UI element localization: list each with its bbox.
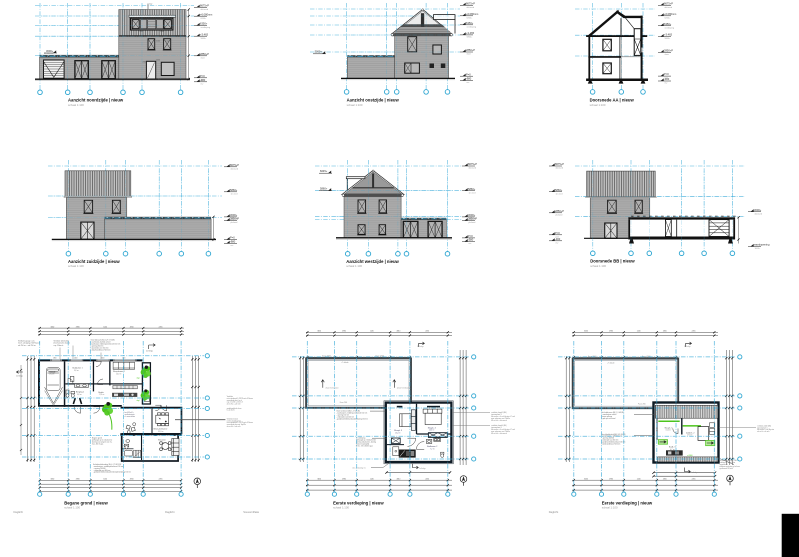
svg-text:3000+: 3000+ bbox=[230, 213, 238, 217]
svg-text:schaal 1:100: schaal 1:100 bbox=[68, 103, 84, 107]
svg-text:dakrand: dakrand bbox=[231, 167, 239, 170]
svg-text:2e f/erfgr.: 2e f/erfgr. bbox=[684, 346, 691, 348]
svg-text:2x00: 2x00 bbox=[156, 41, 160, 43]
svg-text:5860+: 5860+ bbox=[665, 38, 672, 40]
svg-text:3460: 3460 bbox=[50, 326, 54, 328]
svg-text:2980: 2980 bbox=[609, 331, 613, 333]
svg-text:schaal 1:100: schaal 1:100 bbox=[346, 264, 362, 268]
svg-text:b.k: b.k bbox=[158, 79, 160, 81]
svg-text:2265: 2265 bbox=[159, 479, 163, 481]
svg-text:Fase 266: Fase 266 bbox=[638, 404, 646, 406]
svg-text:4810: 4810 bbox=[130, 479, 134, 481]
svg-text:1240: 1240 bbox=[637, 479, 641, 481]
svg-text:5860+: 5860+ bbox=[468, 187, 476, 191]
svg-text:2e f/erfgr.: 2e f/erfgr. bbox=[417, 346, 424, 348]
svg-text:-300: -300 bbox=[468, 238, 474, 242]
svg-text:verdieping: verdieping bbox=[201, 26, 211, 29]
svg-text:plafond: plafond bbox=[469, 222, 477, 224]
svg-text:5860+: 5860+ bbox=[555, 188, 563, 192]
svg-text:35,2 m²: 35,2 m² bbox=[158, 430, 164, 433]
svg-text:schaal 1:100: schaal 1:100 bbox=[590, 103, 606, 107]
svg-text:dakrand: dakrand bbox=[556, 167, 564, 170]
svg-text:6260+: 6260+ bbox=[665, 17, 672, 19]
svg-text:19,3 m²: 19,3 m² bbox=[49, 373, 55, 376]
svg-text:2265: 2265 bbox=[425, 479, 429, 481]
svg-text:9,8 m²: 9,8 m² bbox=[74, 369, 79, 372]
svg-text:14,7 m²: 14,7 m² bbox=[116, 372, 122, 375]
svg-text:2265: 2265 bbox=[425, 331, 429, 333]
svg-text:1240: 1240 bbox=[103, 479, 107, 481]
svg-text:verdieping: verdieping bbox=[665, 26, 675, 29]
svg-text:P=0: P=0 bbox=[230, 236, 235, 240]
svg-text:2400: 2400 bbox=[74, 357, 78, 359]
svg-text:dagl.: dagl. bbox=[137, 400, 141, 402]
svg-text:dakrand: dakrand bbox=[467, 6, 475, 9]
svg-text:schaal 1:100: schaal 1:100 bbox=[347, 103, 363, 107]
svg-text:2850+P: 2850+P bbox=[468, 217, 477, 221]
svg-text:4810: 4810 bbox=[397, 479, 401, 481]
svg-text:2265: 2265 bbox=[692, 331, 696, 333]
svg-text:plafond: plafond bbox=[231, 222, 239, 224]
svg-text:6350+: 6350+ bbox=[200, 22, 208, 26]
svg-text:1240: 1240 bbox=[370, 479, 374, 481]
svg-text:3460: 3460 bbox=[317, 331, 321, 333]
svg-text:13,2 m²: 13,2 m² bbox=[395, 431, 401, 434]
svg-text:schaal 1:100: schaal 1:100 bbox=[333, 506, 349, 510]
svg-text:+3.465: +3.465 bbox=[200, 32, 209, 36]
svg-text:8675+P: 8675+P bbox=[466, 1, 475, 5]
svg-text:1240: 1240 bbox=[103, 326, 107, 328]
svg-text:3000+: 3000+ bbox=[468, 213, 476, 217]
svg-text:schaal 1:100: schaal 1:100 bbox=[68, 264, 84, 268]
svg-text:P=0: P=0 bbox=[555, 231, 560, 235]
svg-text:2265: 2265 bbox=[159, 326, 163, 328]
svg-text:2980: 2980 bbox=[342, 331, 346, 333]
svg-text:6260+: 6260+ bbox=[201, 18, 208, 20]
svg-text:2265: 2265 bbox=[692, 479, 696, 481]
svg-text:dakrand: dakrand bbox=[469, 167, 477, 170]
svg-text:+7 dakde: +7 dakde bbox=[341, 362, 348, 364]
svg-text:2e f/erfgr.: 2e f/erfgr. bbox=[146, 350, 154, 353]
svg-text:2980: 2980 bbox=[342, 479, 346, 481]
svg-text:-300: -300 bbox=[466, 77, 472, 81]
svg-text:P=0: P=0 bbox=[664, 72, 669, 76]
svg-text:kast 8/8 m2 k.ventilatieruimte: kast 8/8 m2 k.ventilatieruimtecf. voorsc… bbox=[125, 411, 136, 418]
svg-text:1e f/erfgr.: 1e f/erfgr. bbox=[16, 375, 24, 378]
svg-text:13,4 m²: 13,4 m² bbox=[429, 429, 435, 432]
svg-text:2850+P: 2850+P bbox=[200, 52, 209, 56]
svg-text:8675+P: 8675+P bbox=[230, 163, 239, 167]
svg-text:dagl.: dagl. bbox=[137, 377, 141, 379]
svg-text:2300: 2300 bbox=[143, 62, 147, 64]
svg-text:1240: 1240 bbox=[637, 331, 641, 333]
svg-text:2850+P: 2850+P bbox=[230, 217, 239, 221]
svg-text:3460: 3460 bbox=[317, 479, 321, 481]
svg-text:2850+P: 2850+P bbox=[664, 49, 673, 53]
svg-text:2980: 2980 bbox=[76, 326, 80, 328]
svg-text:st 2666: st 2666 bbox=[687, 454, 693, 457]
svg-text:6260+: 6260+ bbox=[467, 17, 474, 19]
svg-text:5860+: 5860+ bbox=[230, 188, 238, 192]
svg-text:3000+: 3000+ bbox=[315, 50, 323, 54]
svg-text:schaal 1:100: schaal 1:100 bbox=[590, 264, 606, 268]
svg-text:3460: 3460 bbox=[584, 331, 588, 333]
svg-text:4810: 4810 bbox=[663, 479, 667, 481]
svg-text:3000+: 3000+ bbox=[46, 49, 54, 53]
svg-text:5860+: 5860+ bbox=[467, 37, 474, 39]
svg-text:2850+P: 2850+P bbox=[555, 209, 564, 213]
svg-text:vloer: vloer bbox=[467, 53, 472, 56]
svg-text:schaal 1:100: schaal 1:100 bbox=[64, 506, 80, 510]
svg-text:-300: -300 bbox=[200, 78, 206, 82]
svg-text:Souverniflatie: Souverniflatie bbox=[243, 510, 259, 514]
svg-text:6350+: 6350+ bbox=[466, 21, 474, 25]
svg-text:+3.465: +3.465 bbox=[664, 33, 673, 37]
svg-text:7,3 m²: 7,3 m² bbox=[160, 441, 165, 444]
svg-text:+6.080mm: +6.080mm bbox=[466, 12, 478, 16]
svg-text:4810: 4810 bbox=[130, 326, 134, 328]
svg-text:8675+P: 8675+P bbox=[468, 162, 477, 166]
svg-text:Daglicht: Daglicht bbox=[549, 510, 559, 514]
svg-text:6350+: 6350+ bbox=[664, 22, 672, 26]
svg-text:wandopening: wandopening bbox=[754, 243, 770, 247]
svg-text:kw: kw bbox=[150, 4, 153, 6]
svg-text:Fase 266: Fase 266 bbox=[340, 402, 348, 404]
svg-text:1240: 1240 bbox=[370, 331, 374, 333]
svg-text:dakrand: dakrand bbox=[201, 8, 209, 11]
svg-text:500k: 500k bbox=[160, 31, 164, 33]
svg-text:2980: 2980 bbox=[76, 479, 80, 481]
svg-text:dakrand: dakrand bbox=[755, 212, 763, 215]
svg-text:bk dakrand: bk dakrand bbox=[44, 52, 53, 55]
svg-text:P=0: P=0 bbox=[468, 234, 473, 238]
svg-text:verdieping: verdieping bbox=[467, 25, 477, 28]
svg-text:vloer: vloer bbox=[201, 56, 206, 59]
svg-text:8675+P: 8675+P bbox=[200, 3, 209, 7]
svg-text:plafond: plafond bbox=[556, 214, 564, 216]
svg-text:2x00: 2x00 bbox=[165, 41, 169, 43]
svg-text:dakrand: dakrand bbox=[665, 6, 673, 9]
svg-text:+3.465: +3.465 bbox=[466, 31, 475, 35]
svg-text:3460: 3460 bbox=[50, 479, 54, 481]
svg-text:vloer: vloer bbox=[665, 53, 670, 56]
svg-text:-300: -300 bbox=[664, 77, 670, 81]
svg-text:1800: 1800 bbox=[53, 357, 57, 359]
svg-text:4810: 4810 bbox=[397, 331, 401, 333]
svg-text:1e verd: 1e verd bbox=[556, 192, 564, 195]
svg-text:3000: 3000 bbox=[101, 357, 105, 359]
svg-text:1e verd: 1e verd bbox=[231, 192, 239, 195]
svg-text:2850+P: 2850+P bbox=[466, 48, 475, 52]
svg-text:Daglicht: Daglicht bbox=[165, 510, 175, 514]
svg-text:8245+: 8245+ bbox=[320, 169, 328, 173]
svg-text:P=0: P=0 bbox=[200, 74, 205, 78]
svg-text:17,3 m²: 17,3 m² bbox=[99, 393, 105, 396]
svg-text:5,8 m²: 5,8 m² bbox=[77, 393, 82, 396]
svg-text:Daglicht: Daglicht bbox=[14, 510, 24, 514]
svg-text:5860+: 5860+ bbox=[320, 187, 328, 191]
svg-text:-300: -300 bbox=[230, 240, 236, 244]
svg-text:+6.080mm: +6.080mm bbox=[200, 12, 212, 16]
svg-text:1e verd: 1e verd bbox=[469, 191, 477, 194]
svg-text:2980: 2980 bbox=[609, 479, 613, 481]
svg-text:8675+P: 8675+P bbox=[664, 1, 673, 5]
svg-text:13,2 m²: 13,2 m² bbox=[666, 429, 672, 432]
svg-text:-300: -300 bbox=[555, 237, 561, 241]
svg-text:7,2 m²: 7,2 m² bbox=[430, 447, 435, 450]
svg-text:5860+: 5860+ bbox=[201, 38, 208, 40]
svg-text:3000+: 3000+ bbox=[754, 208, 762, 212]
svg-text:1000+: 1000+ bbox=[755, 248, 762, 250]
svg-text:1e f/erfgr.: 1e f/erfgr. bbox=[419, 468, 426, 470]
svg-text:P=0: P=0 bbox=[466, 72, 471, 76]
svg-text:+7 dakde: +7 dakde bbox=[607, 363, 614, 365]
svg-text:3460: 3460 bbox=[584, 479, 588, 481]
svg-text:2000: 2000 bbox=[156, 60, 160, 62]
svg-text:schaal 1:100: schaal 1:100 bbox=[602, 506, 618, 510]
svg-text:1e f/erfgr.: 1e f/erfgr. bbox=[691, 472, 698, 474]
svg-text:4810: 4810 bbox=[663, 331, 667, 333]
svg-text:+6.080mm: +6.080mm bbox=[664, 12, 676, 16]
svg-text:8675+P: 8675+P bbox=[555, 162, 564, 166]
